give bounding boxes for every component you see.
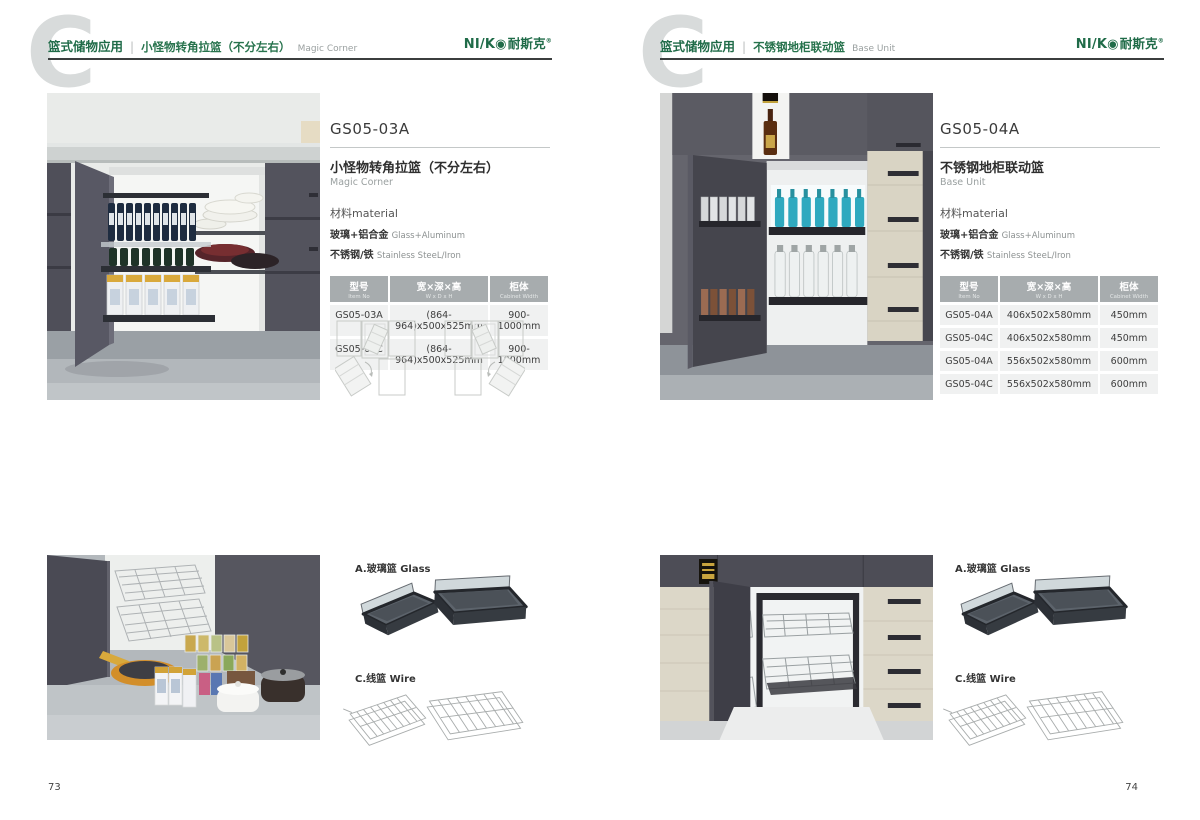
brand-logo: NI/K◉耐斯克®	[1076, 33, 1164, 52]
table-cell: 556x502x580mm	[1000, 374, 1098, 394]
page-header: 篮式储物应用 | 不锈钢地柜联动篮 Base Unit	[660, 36, 895, 55]
glass-basket-art	[946, 566, 1131, 670]
lifestyle-photo-wire-corner	[47, 555, 320, 740]
table-header-cell: 型号Item No	[330, 276, 388, 302]
brand-logo-cn: 耐斯克	[508, 36, 546, 51]
material-en: Glass+Aluminum	[392, 231, 465, 241]
model-number: GS05-03A	[330, 120, 550, 148]
header-divider: |	[130, 40, 134, 54]
brand-logo: NI/K◉耐斯克®	[464, 33, 552, 52]
product-name-en: Base Unit	[940, 177, 1160, 188]
spec-table-header: 型号Item No 宽×深×高W x D x H 柜体Cabinet Width	[940, 276, 1158, 302]
material-cn: 不锈钢/铁	[940, 250, 984, 261]
table-cell: 450mm	[1100, 305, 1158, 325]
header-underline	[48, 58, 552, 60]
material-cn: 不锈钢/铁	[330, 250, 374, 261]
material-en: Stainless SteeL/Iron	[987, 251, 1071, 261]
header-title-en: Magic Corner	[298, 44, 358, 54]
page-number: 73	[48, 782, 61, 793]
material-line: 玻璃+铝合金 Glass+Aluminum	[330, 226, 550, 241]
table-header-cell: 宽×深×高W x D x H	[390, 276, 488, 302]
registered-mark: ®	[1158, 38, 1164, 45]
table-cell: GS05-04A	[940, 305, 998, 325]
table-header-cell: 宽×深×高W x D x H	[1000, 276, 1098, 302]
table-row: GS05-04A406x502x580mm450mm	[940, 305, 1158, 325]
page-number: 74	[1125, 782, 1138, 793]
table-row: GS05-04C406x502x580mm450mm	[940, 328, 1158, 348]
catalog-page-left: C 篮式储物应用 | 小怪物转角拉篮（不分左右） Magic Corner NI…	[0, 0, 600, 820]
table-cell: 600mm	[1100, 351, 1158, 371]
table-header-cell: 柜体Cabinet Width	[490, 276, 548, 302]
model-number: GS05-04A	[940, 120, 1160, 148]
glass-basket-art	[346, 566, 531, 670]
table-cell: GS05-04C	[940, 374, 998, 394]
material-en: Glass+Aluminum	[1002, 231, 1075, 241]
spec-table-body: GS05-04A406x502x580mm450mmGS05-04C406x50…	[940, 305, 1158, 394]
brand-logo-latin: NI/K◉	[464, 37, 507, 52]
page-header: 篮式储物应用 | 小怪物转角拉篮（不分左右） Magic Corner	[48, 36, 357, 55]
product-name-en: Magic Corner	[330, 177, 550, 188]
wire-basket-art	[340, 679, 530, 778]
spec-table: 型号Item No 宽×深×高W x D x H 柜体Cabinet Width…	[940, 276, 1158, 394]
product-info: GS05-04A 不锈钢地柜联动篮 Base Unit 材料material 玻…	[940, 120, 1160, 394]
brand-logo-cn: 耐斯克	[1120, 36, 1158, 51]
corner-diagram-left	[335, 316, 421, 398]
product-name-cn: 不锈钢地柜联动篮	[940, 157, 1160, 176]
material-line: 不锈钢/铁 Stainless SteeL/Iron	[330, 246, 550, 261]
materials-heading: 材料material	[940, 205, 1160, 221]
table-row: GS05-04C556x502x580mm600mm	[940, 374, 1158, 394]
category-label: 篮式储物应用	[660, 36, 735, 55]
material-cn: 玻璃+铝合金	[330, 230, 388, 241]
table-cell: 600mm	[1100, 374, 1158, 394]
material-en: Stainless SteeL/Iron	[377, 251, 461, 261]
table-cell: GS05-04A	[940, 351, 998, 371]
lifestyle-photo-wire-base	[660, 555, 933, 740]
table-header-cell: 柜体Cabinet Width	[1100, 276, 1158, 302]
header-title-cn: 不锈钢地柜联动篮	[753, 39, 845, 55]
header-title-cn: 小怪物转角拉篮（不分左右）	[141, 39, 291, 55]
materials-heading: 材料material	[330, 205, 550, 221]
product-name-cn: 小怪物转角拉篮（不分左右）	[330, 157, 550, 176]
table-cell: 406x502x580mm	[1000, 328, 1098, 348]
header-divider: |	[742, 40, 746, 54]
catalog-spread: C 篮式储物应用 | 小怪物转角拉篮（不分左右） Magic Corner NI…	[0, 0, 1200, 820]
corner-diagram-right	[439, 316, 525, 398]
table-cell: 556x502x580mm	[1000, 351, 1098, 371]
wire-basket-art	[940, 679, 1130, 778]
product-photo-corner-cabinet	[47, 93, 320, 400]
material-cn: 玻璃+铝合金	[940, 230, 998, 241]
spec-table-header: 型号Item No 宽×深×高W x D x H 柜体Cabinet Width	[330, 276, 548, 302]
catalog-page-right: C 篮式储物应用 | 不锈钢地柜联动篮 Base Unit NI/K◉耐斯克®	[600, 0, 1200, 820]
material-line: 不锈钢/铁 Stainless SteeL/Iron	[940, 246, 1160, 261]
brand-logo-latin: NI/K◉	[1076, 37, 1119, 52]
corner-diagrams	[335, 316, 525, 398]
material-line: 玻璃+铝合金 Glass+Aluminum	[940, 226, 1160, 241]
table-cell: GS05-04C	[940, 328, 998, 348]
product-photo-base-unit	[660, 93, 933, 400]
category-label: 篮式储物应用	[48, 36, 123, 55]
table-header-cell: 型号Item No	[940, 276, 998, 302]
registered-mark: ®	[546, 38, 552, 45]
table-row: GS05-04A556x502x580mm600mm	[940, 351, 1158, 371]
table-cell: 406x502x580mm	[1000, 305, 1098, 325]
header-title-en: Base Unit	[852, 44, 895, 54]
table-cell: 450mm	[1100, 328, 1158, 348]
header-underline	[660, 58, 1164, 60]
